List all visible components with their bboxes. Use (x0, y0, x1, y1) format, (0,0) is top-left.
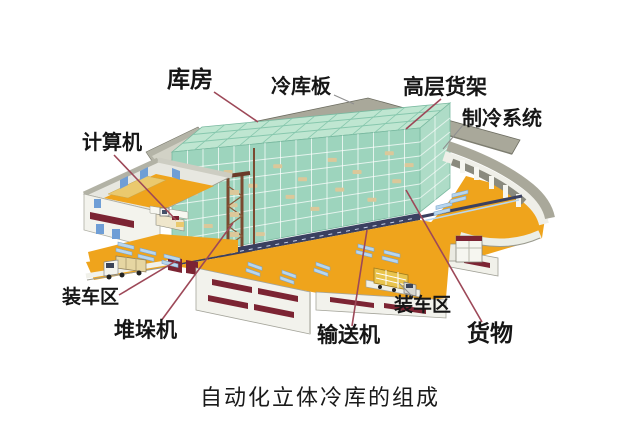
diagram-canvas: 库房 冷库板 高层货架 制冷系统 计算机 装车区 堆垛机 输送机 装车区 货物 … (0, 0, 640, 440)
leader-storeroom (214, 92, 258, 122)
label-loading-left: 装车区 (62, 288, 119, 308)
label-high-rack: 高层货架 (403, 77, 487, 99)
label-cold-panel: 冷库板 (271, 77, 331, 98)
label-computer: 计算机 (82, 133, 142, 154)
label-storeroom: 库房 (167, 67, 213, 91)
diagram-caption: 自动化立体冷库的组成 (0, 380, 640, 412)
label-goods: 货物 (467, 321, 513, 345)
label-refrigeration: 制冷系统 (462, 109, 542, 130)
label-loading-right: 装车区 (394, 296, 451, 316)
label-conveyor: 输送机 (317, 325, 380, 347)
label-stacker-crane: 堆垛机 (114, 320, 177, 342)
warehouse-illustration (0, 0, 640, 440)
